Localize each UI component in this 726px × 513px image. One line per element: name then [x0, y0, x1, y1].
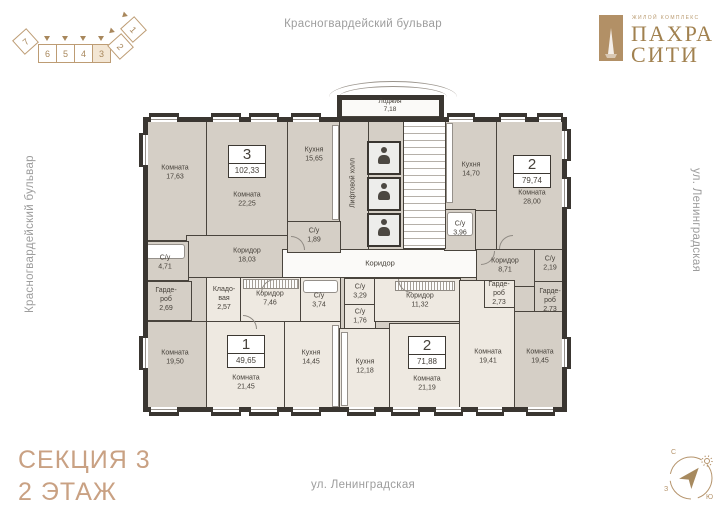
apt2t-bathroom-small[interactable]	[534, 249, 567, 283]
window	[478, 407, 502, 412]
entrance-marker-icon	[98, 36, 104, 41]
window	[143, 135, 148, 165]
street-label-right: ул. Ленинградская	[690, 168, 702, 343]
kitchen-counter	[446, 123, 453, 203]
kitchen-counter	[341, 332, 348, 406]
badge-area: 102,33	[229, 164, 265, 177]
shower-icon	[447, 212, 473, 236]
logo-title-line1: ПАХРА	[631, 23, 714, 44]
minimap-section-4[interactable]: 4	[74, 44, 93, 63]
common-corridor	[282, 249, 478, 278]
window	[539, 117, 561, 122]
window	[562, 179, 567, 207]
window	[143, 338, 148, 368]
badge-rooms: 3	[229, 146, 265, 164]
floor-plan: 3 102,33 2 79,74 1 49,65 2 71,88 Лоджия7…	[143, 95, 567, 412]
window	[349, 407, 374, 412]
entrance-marker-icon	[80, 36, 86, 41]
elevator-icon	[367, 213, 401, 247]
apt2b-bathroom1[interactable]	[344, 278, 376, 306]
badge-rooms: 2	[409, 337, 445, 355]
section-title: СЕКЦИЯ 3	[18, 444, 151, 476]
staircase	[403, 119, 446, 249]
window	[293, 407, 319, 412]
sun-icon	[705, 459, 710, 464]
bathtub-icon	[146, 244, 185, 259]
elevator-icon	[367, 177, 401, 211]
apartment-badge-3k[interactable]: 3 102,33	[228, 145, 266, 178]
street-label-left: Красногвардейский бульвар	[24, 128, 36, 313]
apt2b-wardrobe[interactable]	[484, 280, 515, 308]
window	[501, 117, 525, 122]
apt2t-room-19-45[interactable]	[514, 311, 567, 412]
apt1-storeroom[interactable]	[206, 277, 242, 323]
lift-hall	[339, 117, 369, 251]
badge-area: 71,88	[409, 355, 445, 368]
window	[251, 407, 277, 412]
section-floor-title: СЕКЦИЯ 3 2 ЭТАЖ	[18, 444, 151, 508]
window	[562, 339, 567, 367]
window	[449, 117, 473, 122]
minimap-section-6[interactable]: 6	[38, 44, 57, 63]
window	[213, 117, 239, 122]
window	[293, 117, 319, 122]
building-section-minimap: 7 6 5 4 3 2 1	[12, 10, 162, 76]
entrance-marker-icon	[62, 36, 68, 41]
compass-south-label: Ю	[706, 494, 713, 501]
entrance-marker-icon	[120, 12, 128, 20]
apartment-badge-2k-top[interactable]: 2 79,74	[513, 155, 551, 188]
apartment-badge-1k[interactable]: 1 49,65	[227, 335, 265, 368]
compass-west-label: З	[664, 486, 668, 493]
badge-rooms: 2	[514, 156, 550, 174]
compass-north-label: С	[671, 449, 676, 456]
window	[528, 407, 553, 412]
window	[151, 407, 177, 412]
badge-rooms: 1	[228, 336, 264, 354]
kitchen-counter	[332, 125, 339, 220]
floor-title: 2 ЭТАЖ	[18, 476, 151, 508]
compass-rose: С З Ю	[662, 448, 720, 506]
room-loggia[interactable]	[337, 95, 444, 117]
minimap-section-7[interactable]: 7	[12, 28, 39, 55]
window	[251, 117, 277, 122]
logo-title-line2: СИТИ	[631, 44, 714, 65]
entrance-marker-icon	[44, 36, 50, 41]
apt3-room-19-50[interactable]	[143, 321, 208, 412]
north-arrow-icon	[679, 463, 705, 489]
entrance-marker-icon	[107, 28, 115, 36]
badge-area: 79,74	[514, 174, 550, 187]
brand-logo[interactable]: ЖИЛОЙ КОМПЛЕКС ПАХРА СИТИ	[598, 14, 714, 65]
logo-tree-icon	[598, 14, 624, 62]
bathtub-icon	[303, 280, 338, 293]
elevator-icon	[367, 141, 401, 175]
apt2b-bathroom2[interactable]	[344, 304, 376, 331]
window	[393, 407, 418, 412]
apt3-wardrobe[interactable]	[143, 281, 192, 321]
badge-area: 49,65	[228, 354, 264, 367]
kitchen-counter	[332, 325, 339, 407]
apartment-badge-2k-bottom[interactable]: 2 71,88	[408, 336, 446, 369]
window	[151, 117, 177, 122]
window	[213, 407, 239, 412]
apt3-room-17-63[interactable]	[143, 117, 208, 241]
window	[436, 407, 461, 412]
window	[562, 131, 567, 159]
minimap-section-5[interactable]: 5	[56, 44, 75, 63]
